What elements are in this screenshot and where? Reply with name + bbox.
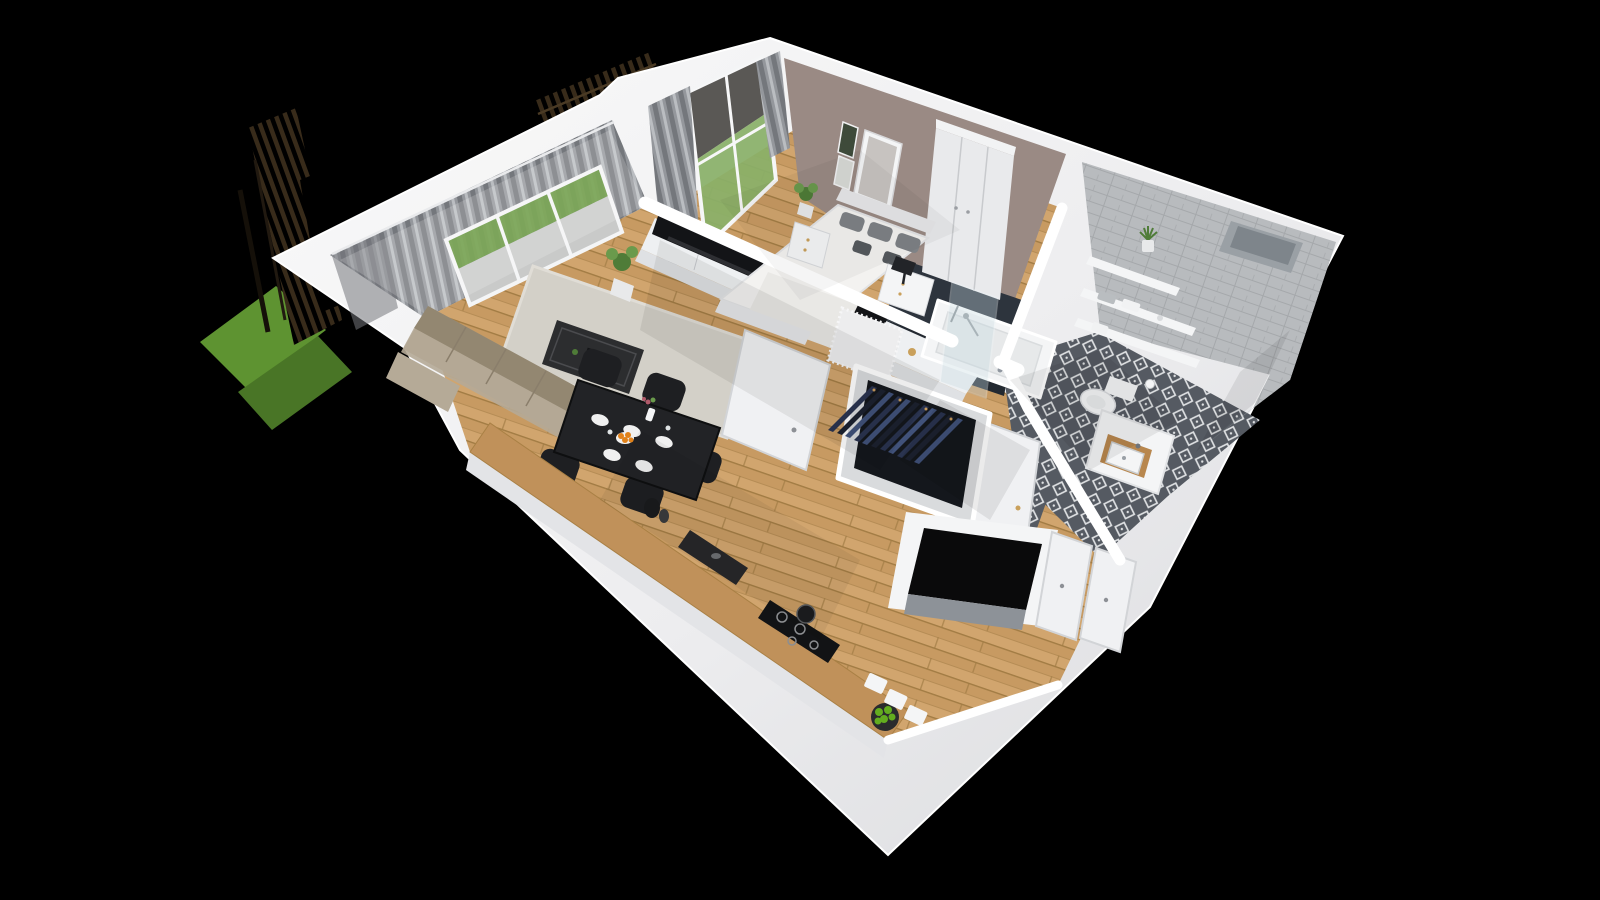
door-handle xyxy=(792,428,797,433)
door-handle xyxy=(1016,506,1021,511)
toiletry xyxy=(1157,315,1163,321)
decor-dish xyxy=(908,348,916,356)
wardrobe xyxy=(922,119,1016,300)
installation-shaft xyxy=(888,512,1058,630)
fruit-bowl xyxy=(616,432,634,444)
apartment-render xyxy=(0,0,1600,900)
toilet-paper xyxy=(1146,380,1155,389)
render-stage xyxy=(0,0,1600,900)
